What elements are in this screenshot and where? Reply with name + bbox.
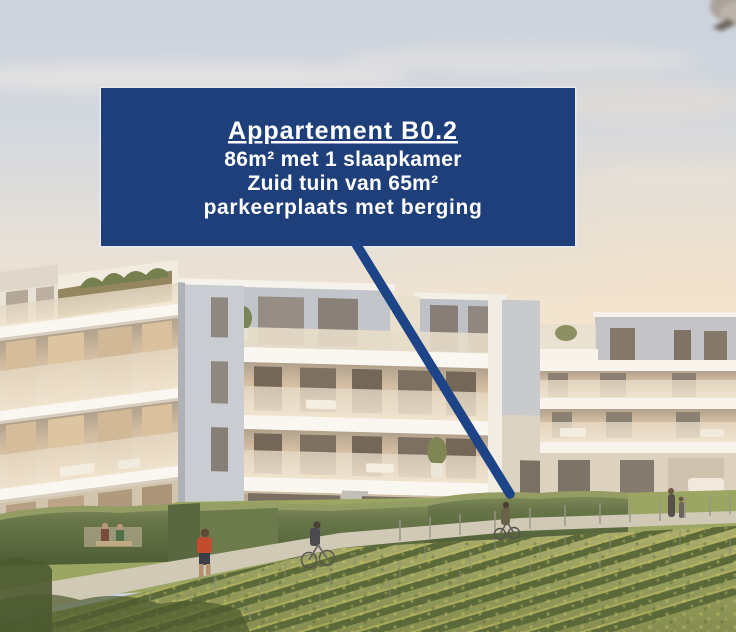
svg-text:Zuid tuin van 65m²: Zuid tuin van 65m² <box>248 172 439 195</box>
svg-text:Appartement B0.2: Appartement B0.2 <box>228 117 458 145</box>
svg-text:parkeerplaats met berging: parkeerplaats met berging <box>204 196 483 219</box>
svg-text:86m² met 1 slaapkamer: 86m² met 1 slaapkamer <box>224 148 461 171</box>
